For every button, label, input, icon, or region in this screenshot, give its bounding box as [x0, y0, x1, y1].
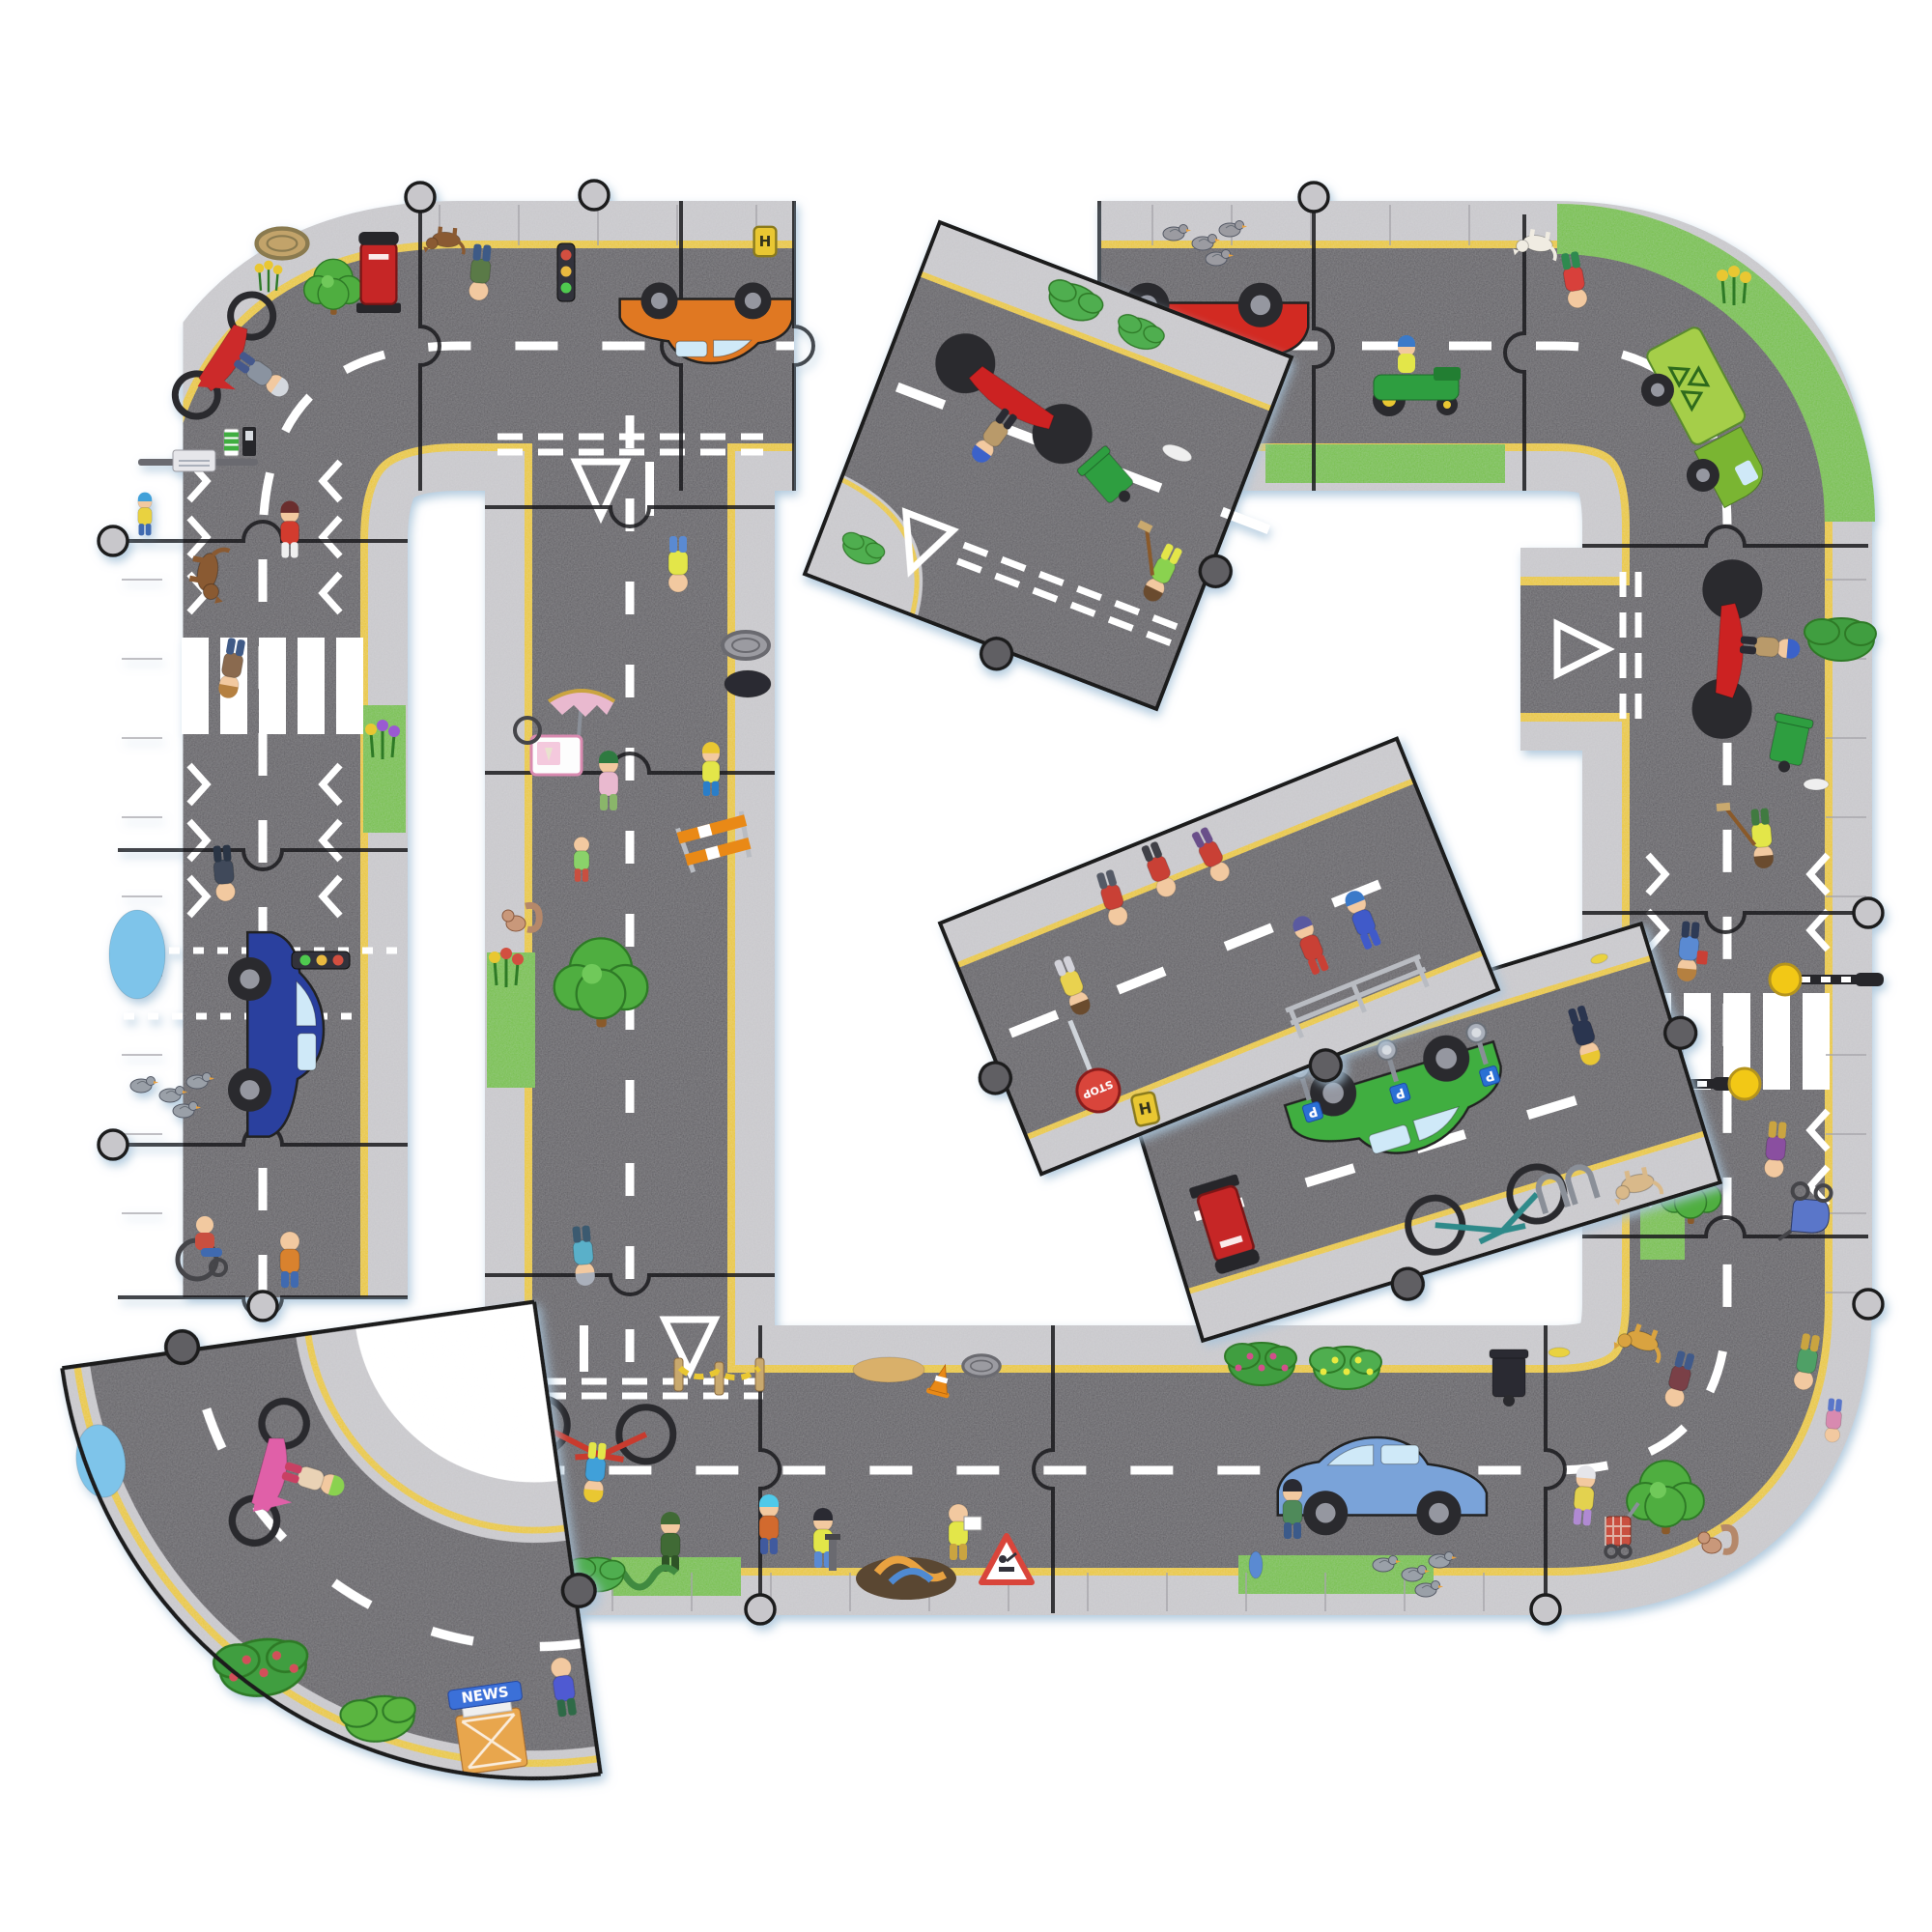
manhole-open [723, 632, 769, 659]
litter [1804, 779, 1829, 790]
fallen-traffic-light [292, 952, 350, 969]
thermos [1249, 1551, 1263, 1578]
zebra-stripe [182, 638, 209, 734]
manhole-cover [963, 1355, 1000, 1377]
drain-cover [257, 229, 308, 259]
postbox [356, 232, 401, 313]
road-jigsaw-scene: H [0, 0, 1932, 1932]
banana-skin [1548, 1348, 1570, 1357]
rubble [853, 1357, 924, 1382]
hole-with-pipes [856, 1557, 956, 1600]
zebra-stripe [1763, 993, 1790, 1090]
traffic-light [557, 243, 575, 301]
zebra-stripe [1803, 993, 1830, 1090]
puzzle-photo: H [0, 0, 1932, 1932]
zebra-stripe [336, 638, 363, 734]
bus-stop-sign: H [1131, 1092, 1160, 1126]
bus-stop-sign: H [754, 227, 777, 256]
open-hole [724, 670, 771, 697]
zebra-stripe [298, 638, 325, 734]
zebra-stripe [259, 638, 286, 734]
detached-piece-corner-news-stand[interactable]: NEWS [57, 1279, 620, 1842]
puddle [109, 910, 165, 999]
bus-stop-sign-label: H [759, 233, 772, 250]
